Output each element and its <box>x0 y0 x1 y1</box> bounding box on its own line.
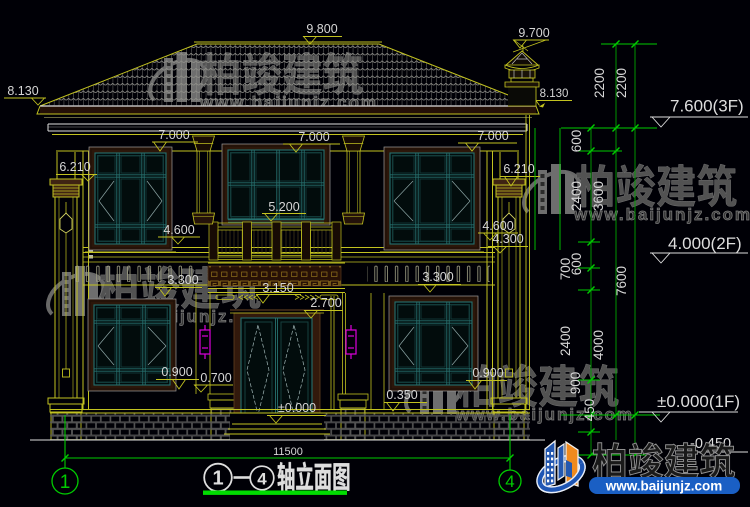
svg-text:4.300: 4.300 <box>492 232 523 246</box>
svg-text:7.000: 7.000 <box>477 129 508 143</box>
svg-text:4: 4 <box>257 470 267 489</box>
svg-text:1: 1 <box>60 472 71 493</box>
svg-text:8.130: 8.130 <box>540 88 569 100</box>
svg-text:7.000: 7.000 <box>158 128 189 142</box>
svg-text:5.200: 5.200 <box>268 200 299 214</box>
svg-text:450: 450 <box>582 399 597 422</box>
svg-text:6.210: 6.210 <box>503 162 534 176</box>
svg-text:11500: 11500 <box>273 446 303 458</box>
svg-text:±0.000(1F): ±0.000(1F) <box>657 392 740 411</box>
svg-text:600: 600 <box>569 130 584 153</box>
svg-text:0.700: 0.700 <box>200 371 231 385</box>
svg-text:7.600(3F): 7.600(3F) <box>670 97 744 116</box>
svg-text:600: 600 <box>569 253 584 276</box>
svg-text:0.350: 0.350 <box>386 388 417 402</box>
svg-text:0.900: 0.900 <box>472 366 503 380</box>
svg-text:3.300: 3.300 <box>422 270 453 284</box>
svg-text:7600: 7600 <box>614 266 629 296</box>
svg-text:4000: 4000 <box>591 330 606 360</box>
svg-text:www.baijunjz.com: www.baijunjz.com <box>605 479 723 494</box>
svg-text:4.600: 4.600 <box>482 219 513 233</box>
svg-text:4.000(2F): 4.000(2F) <box>668 234 742 253</box>
svg-text:6.210: 6.210 <box>59 160 90 174</box>
svg-text:4.600: 4.600 <box>163 223 194 237</box>
svg-text:9.700: 9.700 <box>518 26 549 40</box>
svg-text:1: 1 <box>212 468 223 490</box>
svg-text:2200: 2200 <box>614 68 629 98</box>
svg-text:3.300: 3.300 <box>167 273 198 287</box>
svg-text:±0.000: ±0.000 <box>278 401 316 415</box>
svg-text:0.900: 0.900 <box>161 365 192 379</box>
svg-text:2400: 2400 <box>558 326 573 356</box>
svg-text:9.800: 9.800 <box>306 22 337 36</box>
svg-text:2200: 2200 <box>592 68 607 98</box>
svg-text:3.150: 3.150 <box>262 281 293 295</box>
svg-text:900: 900 <box>568 372 583 395</box>
svg-text:2.700: 2.700 <box>310 296 341 310</box>
svg-text:2400: 2400 <box>569 181 584 211</box>
svg-text:7.000: 7.000 <box>298 130 329 144</box>
svg-text:4: 4 <box>505 472 514 491</box>
svg-text:3600: 3600 <box>591 181 606 211</box>
svg-text:8.130: 8.130 <box>7 84 38 98</box>
